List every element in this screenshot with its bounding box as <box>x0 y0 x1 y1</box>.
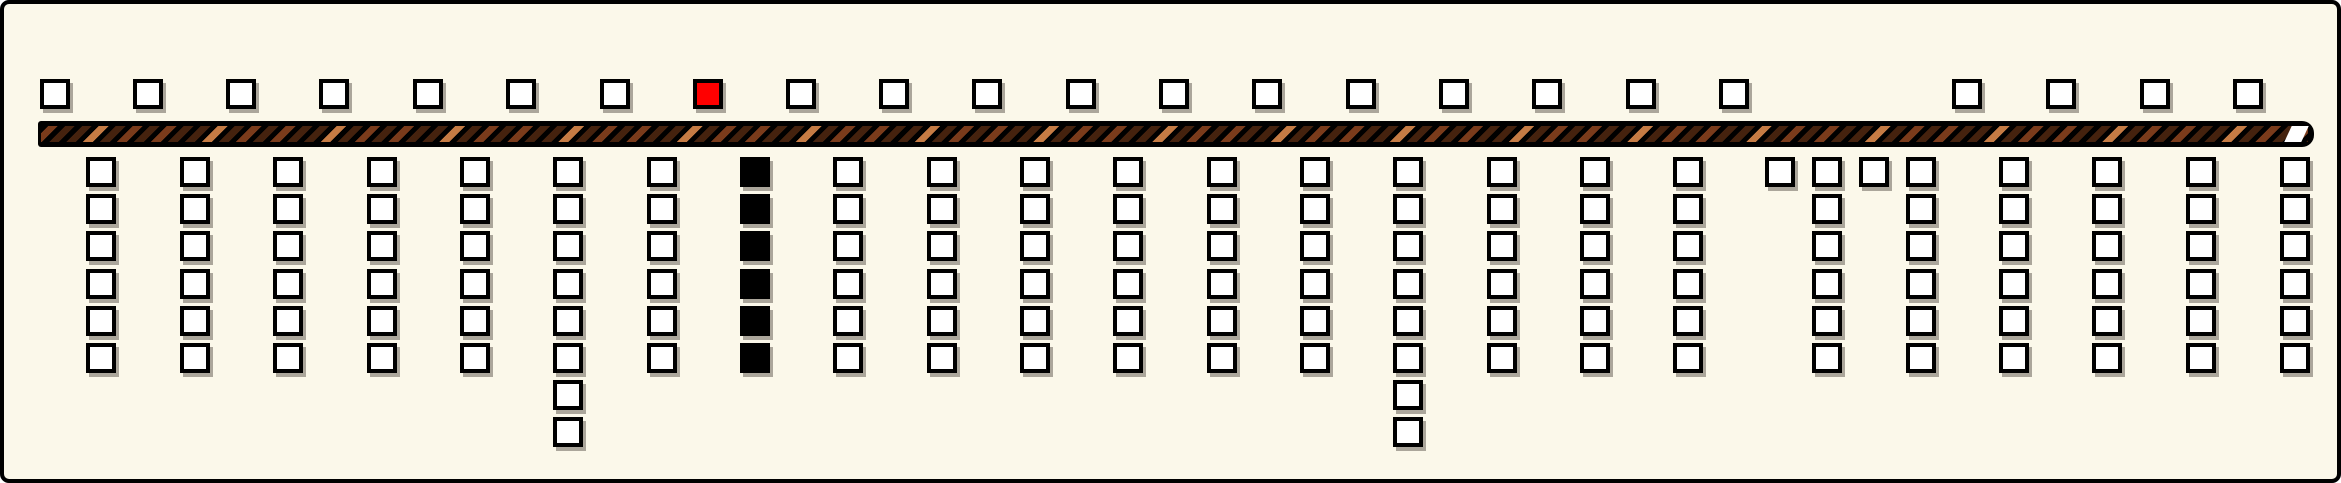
stack-box[interactable] <box>1487 231 1517 261</box>
stack-box[interactable] <box>1999 231 2029 261</box>
stack-box[interactable] <box>1113 269 1143 299</box>
stack-box[interactable] <box>2092 269 2122 299</box>
stack-box[interactable] <box>833 306 863 336</box>
stack-box[interactable] <box>180 194 210 224</box>
top-slot[interactable] <box>1532 79 1562 109</box>
top-slot[interactable] <box>879 79 909 109</box>
top-slot[interactable] <box>1252 79 1282 109</box>
stack-box[interactable] <box>1673 269 1703 299</box>
stack-box[interactable] <box>1393 380 1423 410</box>
top-slot[interactable] <box>40 79 70 109</box>
stack-box[interactable] <box>927 231 957 261</box>
stack-box[interactable] <box>1812 269 1842 299</box>
stack-box[interactable] <box>1300 269 1330 299</box>
top-slot[interactable] <box>506 79 536 109</box>
top-slot[interactable] <box>319 79 349 109</box>
stack-box[interactable] <box>1812 194 1842 224</box>
stack-box[interactable] <box>927 269 957 299</box>
stack-box[interactable] <box>2280 231 2310 261</box>
stack-box[interactable] <box>1113 343 1143 373</box>
stack-box[interactable] <box>1580 194 1610 224</box>
stack-box[interactable] <box>647 306 677 336</box>
stack-box[interactable] <box>1906 269 1936 299</box>
stack-box[interactable] <box>1906 343 1936 373</box>
stack-box[interactable] <box>927 157 957 187</box>
stack-box[interactable] <box>180 269 210 299</box>
stack-box[interactable] <box>1020 343 1050 373</box>
stack-box[interactable] <box>2280 306 2310 336</box>
stack-box[interactable] <box>1999 343 2029 373</box>
stack-box[interactable] <box>2092 194 2122 224</box>
top-slot[interactable] <box>1626 79 1656 109</box>
stack-box[interactable] <box>1999 269 2029 299</box>
stack-box[interactable] <box>1393 194 1423 224</box>
stack-box[interactable] <box>273 194 303 224</box>
stack-box[interactable] <box>647 157 677 187</box>
stack-box[interactable] <box>647 343 677 373</box>
stack-box[interactable] <box>1020 157 1050 187</box>
stack-box[interactable] <box>1207 306 1237 336</box>
stack-box[interactable] <box>553 269 583 299</box>
top-slot[interactable] <box>1952 79 1982 109</box>
stack-box[interactable] <box>367 269 397 299</box>
stack-box[interactable] <box>1393 157 1423 187</box>
stack-box[interactable] <box>2186 269 2216 299</box>
stack-box[interactable] <box>1487 343 1517 373</box>
stack-box[interactable] <box>273 306 303 336</box>
stack-box[interactable] <box>553 194 583 224</box>
stack-box[interactable] <box>86 269 116 299</box>
stack-box[interactable] <box>833 194 863 224</box>
stack-box[interactable] <box>1393 269 1423 299</box>
stack-box[interactable] <box>180 306 210 336</box>
stack-box[interactable] <box>1020 194 1050 224</box>
stack-box[interactable] <box>1300 194 1330 224</box>
stack-box[interactable] <box>1113 194 1143 224</box>
stack-box[interactable] <box>2186 231 2216 261</box>
stack-box[interactable] <box>1393 306 1423 336</box>
stack-box[interactable] <box>1906 231 1936 261</box>
top-slot[interactable] <box>2046 79 2076 109</box>
stack-box[interactable] <box>553 231 583 261</box>
stack-box[interactable] <box>460 269 490 299</box>
stack-box[interactable] <box>553 417 583 447</box>
stack-box[interactable] <box>1812 306 1842 336</box>
stack-box[interactable] <box>2186 306 2216 336</box>
stack-box[interactable] <box>1859 157 1889 187</box>
stack-box[interactable] <box>1207 269 1237 299</box>
top-slot[interactable] <box>786 79 816 109</box>
stack-box[interactable] <box>1020 269 1050 299</box>
stack-box[interactable] <box>367 306 397 336</box>
stack-box[interactable] <box>86 231 116 261</box>
stack-box[interactable] <box>460 231 490 261</box>
screenshot-stage <box>0 0 2341 483</box>
stack-box[interactable] <box>2280 343 2310 373</box>
stack-box[interactable] <box>180 231 210 261</box>
top-slot[interactable] <box>2233 79 2263 109</box>
stack-box[interactable] <box>647 194 677 224</box>
top-slot[interactable] <box>133 79 163 109</box>
stack-box[interactable] <box>553 306 583 336</box>
top-slot[interactable] <box>413 79 443 109</box>
board <box>0 0 2341 483</box>
top-slot[interactable] <box>226 79 256 109</box>
stack-box[interactable] <box>553 343 583 373</box>
stack-box[interactable] <box>1765 157 1795 187</box>
stack-box[interactable] <box>2186 343 2216 373</box>
stack-box[interactable] <box>1580 231 1610 261</box>
stack-box[interactable] <box>1487 194 1517 224</box>
stack-box[interactable] <box>367 157 397 187</box>
stack-box[interactable] <box>1207 194 1237 224</box>
stack-box[interactable] <box>1300 231 1330 261</box>
stack-box[interactable] <box>927 343 957 373</box>
stack-box[interactable] <box>1580 343 1610 373</box>
stack-box[interactable] <box>180 157 210 187</box>
striped-bar <box>38 121 2314 147</box>
stack-box[interactable] <box>833 231 863 261</box>
stack-box[interactable] <box>86 194 116 224</box>
top-slot[interactable] <box>2140 79 2170 109</box>
stack-box-filled[interactable] <box>740 343 770 373</box>
stack-box[interactable] <box>1673 343 1703 373</box>
stack-box[interactable] <box>647 269 677 299</box>
stack-box[interactable] <box>1207 157 1237 187</box>
stack-box[interactable] <box>1020 231 1050 261</box>
stack-box[interactable] <box>647 231 677 261</box>
stack-box[interactable] <box>460 306 490 336</box>
stack-box[interactable] <box>367 194 397 224</box>
stack-box[interactable] <box>1673 306 1703 336</box>
stack-box[interactable] <box>1393 417 1423 447</box>
stack-box-filled[interactable] <box>740 269 770 299</box>
stack-box[interactable] <box>1487 269 1517 299</box>
stack-box[interactable] <box>273 343 303 373</box>
stack-box[interactable] <box>927 306 957 336</box>
stack-box[interactable] <box>460 343 490 373</box>
stack-box[interactable] <box>1207 231 1237 261</box>
stack-box[interactable] <box>1906 194 1936 224</box>
stack-box[interactable] <box>367 231 397 261</box>
stack-box[interactable] <box>2092 343 2122 373</box>
stack-box[interactable] <box>1580 157 1610 187</box>
stack-box[interactable] <box>833 269 863 299</box>
bar-stripes <box>41 126 2308 142</box>
stack-box[interactable] <box>273 231 303 261</box>
stack-box[interactable] <box>2280 194 2310 224</box>
stack-box[interactable] <box>1113 306 1143 336</box>
stack-box[interactable] <box>2186 194 2216 224</box>
stack-box[interactable] <box>1487 157 1517 187</box>
top-slot[interactable] <box>1719 79 1749 109</box>
top-slot[interactable] <box>600 79 630 109</box>
stack-box[interactable] <box>273 269 303 299</box>
stack-box[interactable] <box>1673 194 1703 224</box>
stack-box[interactable] <box>1906 157 1936 187</box>
stack-box[interactable] <box>1812 231 1842 261</box>
stack-box[interactable] <box>460 194 490 224</box>
top-slot[interactable] <box>1066 79 1096 109</box>
stack-box[interactable] <box>1113 231 1143 261</box>
stack-box[interactable] <box>1673 231 1703 261</box>
stack-box-filled[interactable] <box>740 231 770 261</box>
stack-box-filled[interactable] <box>740 306 770 336</box>
top-slot[interactable] <box>972 79 1002 109</box>
stack-box[interactable] <box>1812 343 1842 373</box>
stack-box[interactable] <box>1207 343 1237 373</box>
stack-box[interactable] <box>460 157 490 187</box>
stack-box[interactable] <box>1020 306 1050 336</box>
stack-box[interactable] <box>2280 157 2310 187</box>
stack-box[interactable] <box>1300 306 1330 336</box>
stack-box-filled[interactable] <box>740 194 770 224</box>
stack-box[interactable] <box>1580 306 1610 336</box>
stack-box[interactable] <box>1113 157 1143 187</box>
stack-box[interactable] <box>1393 343 1423 373</box>
stack-box[interactable] <box>1487 306 1517 336</box>
stack-box[interactable] <box>273 157 303 187</box>
stack-box[interactable] <box>86 306 116 336</box>
stack-box[interactable] <box>2092 157 2122 187</box>
stack-box[interactable] <box>1393 231 1423 261</box>
top-slot[interactable] <box>1159 79 1189 109</box>
stack-box[interactable] <box>86 157 116 187</box>
stack-box[interactable] <box>1580 269 1610 299</box>
stack-box[interactable] <box>1906 306 1936 336</box>
stack-box[interactable] <box>180 343 210 373</box>
stack-box[interactable] <box>553 157 583 187</box>
stack-box[interactable] <box>833 343 863 373</box>
top-slot-selected[interactable] <box>693 79 723 109</box>
stack-box[interactable] <box>1999 306 2029 336</box>
stack-box[interactable] <box>927 194 957 224</box>
stack-box[interactable] <box>1300 157 1330 187</box>
stack-box[interactable] <box>1812 157 1842 187</box>
stack-box[interactable] <box>553 380 583 410</box>
stack-box[interactable] <box>833 157 863 187</box>
top-slot[interactable] <box>1346 79 1376 109</box>
stack-box[interactable] <box>2186 157 2216 187</box>
stack-box[interactable] <box>1300 343 1330 373</box>
top-slot[interactable] <box>1439 79 1469 109</box>
stack-box[interactable] <box>86 343 116 373</box>
stack-box[interactable] <box>1999 157 2029 187</box>
stack-box[interactable] <box>367 343 397 373</box>
stack-box[interactable] <box>2092 231 2122 261</box>
stack-box[interactable] <box>1673 157 1703 187</box>
stack-box[interactable] <box>2092 306 2122 336</box>
stack-box[interactable] <box>2280 269 2310 299</box>
stack-box-filled[interactable] <box>740 157 770 187</box>
stack-box[interactable] <box>1999 194 2029 224</box>
